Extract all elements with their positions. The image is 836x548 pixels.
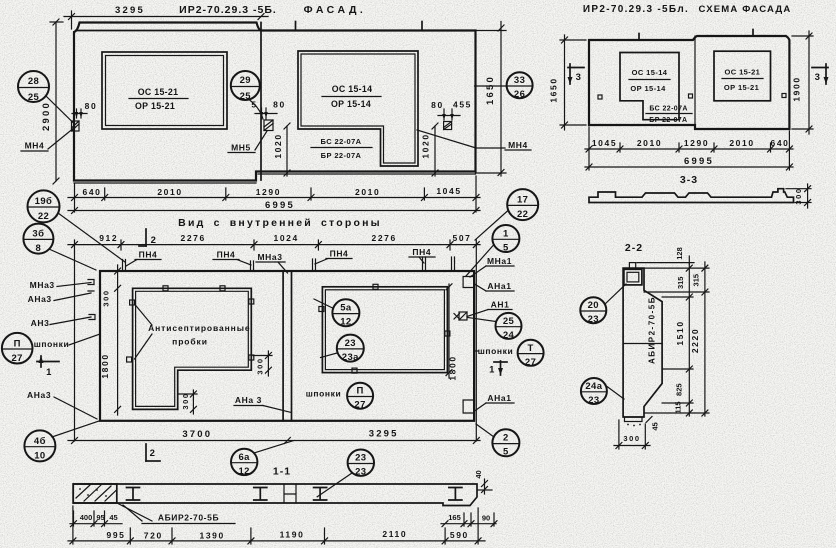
- svg-text:ПН4: ПН4: [217, 250, 236, 260]
- svg-text:АНа1: АНа1: [487, 281, 511, 291]
- svg-text:МНа3: МНа3: [30, 280, 55, 290]
- svg-text:6а: 6а: [239, 452, 251, 463]
- svg-text:2010: 2010: [157, 187, 182, 197]
- svg-text:АБИР2-70-5Б: АБИР2-70-5Б: [158, 513, 219, 523]
- svg-text:720: 720: [144, 531, 163, 541]
- svg-text:23: 23: [355, 467, 366, 478]
- svg-text:ОС 15-21: ОС 15-21: [725, 68, 761, 77]
- svg-text:3: 3: [815, 72, 821, 83]
- svg-text:3295: 3295: [115, 5, 145, 16]
- svg-text:25: 25: [503, 316, 515, 327]
- svg-text:ОР 15-21: ОР 15-21: [135, 101, 175, 111]
- svg-text:1290: 1290: [256, 187, 281, 197]
- svg-text:1: 1: [489, 365, 495, 376]
- svg-text:1650: 1650: [485, 75, 496, 105]
- svg-text:27: 27: [12, 353, 23, 364]
- svg-text:3: 3: [576, 72, 582, 83]
- svg-text:5: 5: [503, 242, 509, 253]
- svg-text:ОС 15-14: ОС 15-14: [632, 68, 668, 77]
- svg-text:8: 8: [36, 243, 42, 254]
- svg-text:300: 300: [623, 434, 640, 443]
- svg-text:2900: 2900: [41, 101, 52, 131]
- svg-text:90: 90: [482, 514, 490, 523]
- svg-text:2276: 2276: [372, 233, 397, 243]
- svg-text:АНа3: АНа3: [28, 294, 52, 304]
- svg-text:3700: 3700: [182, 429, 212, 440]
- svg-text:ОР 15-14: ОР 15-14: [630, 84, 666, 93]
- svg-text:300: 300: [181, 392, 190, 409]
- svg-text:Т: Т: [527, 343, 533, 354]
- svg-text:640: 640: [83, 187, 102, 197]
- svg-text:П: П: [14, 339, 21, 350]
- svg-text:640: 640: [771, 138, 790, 148]
- svg-text:ПН4: ПН4: [412, 247, 431, 257]
- svg-text:1650: 1650: [549, 77, 559, 102]
- svg-text:ПН4: ПН4: [330, 249, 349, 259]
- svg-text:ОР 15-21: ОР 15-21: [724, 83, 759, 92]
- svg-text:ИР2-70.29.3 -5Бл.: ИР2-70.29.3 -5Бл.: [583, 4, 689, 15]
- svg-text:23: 23: [345, 338, 356, 349]
- svg-text:БР 22-07А: БР 22-07А: [321, 151, 362, 160]
- svg-text:пробки: пробки: [172, 337, 208, 347]
- svg-text:2: 2: [503, 433, 509, 444]
- svg-text:5а: 5а: [340, 303, 352, 314]
- svg-text:2010: 2010: [637, 138, 662, 148]
- svg-text:МН5: МН5: [231, 143, 251, 153]
- svg-text:20: 20: [588, 300, 599, 311]
- svg-text:АНа1: АНа1: [487, 393, 511, 403]
- svg-text:АНа 3: АНа 3: [235, 395, 262, 405]
- svg-text:2: 2: [150, 448, 156, 459]
- svg-text:40: 40: [474, 470, 483, 478]
- svg-text:4б: 4б: [34, 436, 46, 447]
- svg-text:1020: 1020: [273, 133, 283, 158]
- svg-text:24: 24: [503, 330, 515, 341]
- svg-text:128: 128: [675, 247, 684, 260]
- svg-text:1045: 1045: [592, 138, 617, 148]
- svg-text:3-3: 3-3: [680, 174, 698, 186]
- svg-text:МН4: МН4: [25, 141, 45, 151]
- svg-text:2110: 2110: [382, 529, 407, 539]
- svg-text:825: 825: [675, 383, 684, 396]
- svg-text:165: 165: [448, 513, 461, 522]
- svg-text:БР 22-07А: БР 22-07А: [649, 117, 687, 124]
- svg-text:5: 5: [251, 100, 257, 110]
- svg-text:АБИР2-70-5Б: АБИР2-70-5Б: [648, 296, 657, 364]
- svg-text:23: 23: [588, 314, 599, 325]
- svg-text:БС 22-07А: БС 22-07А: [649, 106, 688, 113]
- svg-text:МНа1: МНа1: [487, 256, 512, 266]
- svg-text:2220: 2220: [690, 328, 700, 353]
- svg-text:Антисептированные: Антисептированные: [148, 323, 250, 333]
- svg-text:17: 17: [517, 195, 528, 206]
- svg-text:ПН4: ПН4: [139, 250, 158, 260]
- svg-text:300: 300: [794, 187, 803, 204]
- svg-text:10: 10: [34, 450, 45, 461]
- svg-text:29: 29: [240, 75, 251, 86]
- svg-text:315: 315: [692, 274, 701, 287]
- svg-text:1190: 1190: [280, 530, 305, 540]
- svg-text:П: П: [356, 386, 363, 397]
- svg-text:507: 507: [453, 233, 472, 243]
- svg-text:590: 590: [450, 530, 469, 540]
- svg-text:315: 315: [676, 277, 685, 290]
- svg-text:300: 300: [256, 357, 265, 374]
- svg-text:1020: 1020: [421, 133, 431, 158]
- svg-text:2-2: 2-2: [625, 242, 643, 254]
- svg-text:5: 5: [503, 447, 509, 458]
- svg-text:26: 26: [514, 89, 525, 100]
- svg-text:455: 455: [453, 100, 472, 110]
- svg-text:80: 80: [273, 100, 286, 110]
- svg-text:ФАСАД.: ФАСАД.: [304, 4, 367, 16]
- svg-text:1: 1: [46, 367, 52, 378]
- svg-text:АНа3: АНа3: [27, 390, 51, 400]
- svg-text:400: 400: [80, 513, 93, 522]
- svg-text:995: 995: [107, 530, 126, 540]
- svg-text:СХЕМА ФАСАДА: СХЕМА ФАСАДА: [699, 4, 792, 15]
- svg-text:ОР 15-14: ОР 15-14: [331, 99, 371, 109]
- svg-text:22: 22: [38, 211, 49, 222]
- svg-text:БС 22-07А: БС 22-07А: [321, 137, 362, 146]
- svg-text:шпонки: шпонки: [478, 346, 514, 356]
- svg-text:22: 22: [517, 209, 528, 220]
- svg-text:12: 12: [239, 466, 250, 477]
- svg-text:МН4: МН4: [508, 140, 528, 150]
- svg-text:ОС 15-14: ОС 15-14: [332, 84, 373, 94]
- svg-text:33: 33: [514, 75, 525, 86]
- svg-text:23: 23: [588, 395, 599, 406]
- svg-text:1390: 1390: [200, 531, 225, 541]
- svg-text:2010: 2010: [355, 187, 380, 197]
- svg-text:23: 23: [355, 453, 366, 464]
- svg-text:1-1: 1-1: [273, 466, 291, 478]
- svg-text:2010: 2010: [729, 138, 754, 148]
- svg-text:27: 27: [525, 357, 536, 368]
- svg-text:3295: 3295: [369, 429, 399, 440]
- svg-text:28: 28: [28, 76, 39, 87]
- svg-text:23а: 23а: [342, 352, 359, 363]
- svg-text:ИР2-70.29.3 -5Б.: ИР2-70.29.3 -5Б.: [179, 4, 277, 16]
- svg-text:1800: 1800: [448, 355, 458, 380]
- svg-text:19б: 19б: [35, 196, 53, 207]
- svg-text:ОС 15-21: ОС 15-21: [138, 87, 179, 97]
- svg-text:1: 1: [503, 228, 509, 239]
- svg-text:1045: 1045: [436, 186, 461, 196]
- svg-text:24а: 24а: [585, 381, 602, 392]
- svg-text:2276: 2276: [181, 233, 206, 243]
- svg-text:1024: 1024: [274, 233, 299, 243]
- svg-text:1510: 1510: [675, 320, 685, 345]
- svg-text:45: 45: [109, 513, 117, 522]
- svg-text:45: 45: [651, 422, 660, 430]
- svg-text:АН3: АН3: [31, 318, 50, 328]
- svg-text:27: 27: [354, 400, 365, 411]
- svg-text:912: 912: [99, 233, 118, 243]
- svg-text:1900: 1900: [792, 76, 802, 101]
- svg-text:6995: 6995: [265, 200, 295, 211]
- svg-text:300: 300: [102, 289, 111, 306]
- svg-text:6995: 6995: [684, 156, 714, 167]
- svg-text:12: 12: [340, 317, 351, 328]
- svg-text:Вид с внутренней стороны: Вид с внутренней стороны: [178, 217, 382, 229]
- svg-text:АН1: АН1: [491, 300, 510, 310]
- svg-text:80: 80: [85, 101, 98, 111]
- svg-text:шпонки: шпонки: [306, 389, 342, 399]
- svg-text:шпонки: шпонки: [34, 339, 70, 349]
- svg-text:1290: 1290: [684, 138, 709, 148]
- svg-text:3б: 3б: [32, 229, 44, 240]
- svg-text:25: 25: [28, 92, 40, 103]
- svg-text:МНа3: МНа3: [257, 252, 282, 262]
- svg-text:1800: 1800: [100, 353, 110, 378]
- svg-text:80: 80: [431, 100, 444, 110]
